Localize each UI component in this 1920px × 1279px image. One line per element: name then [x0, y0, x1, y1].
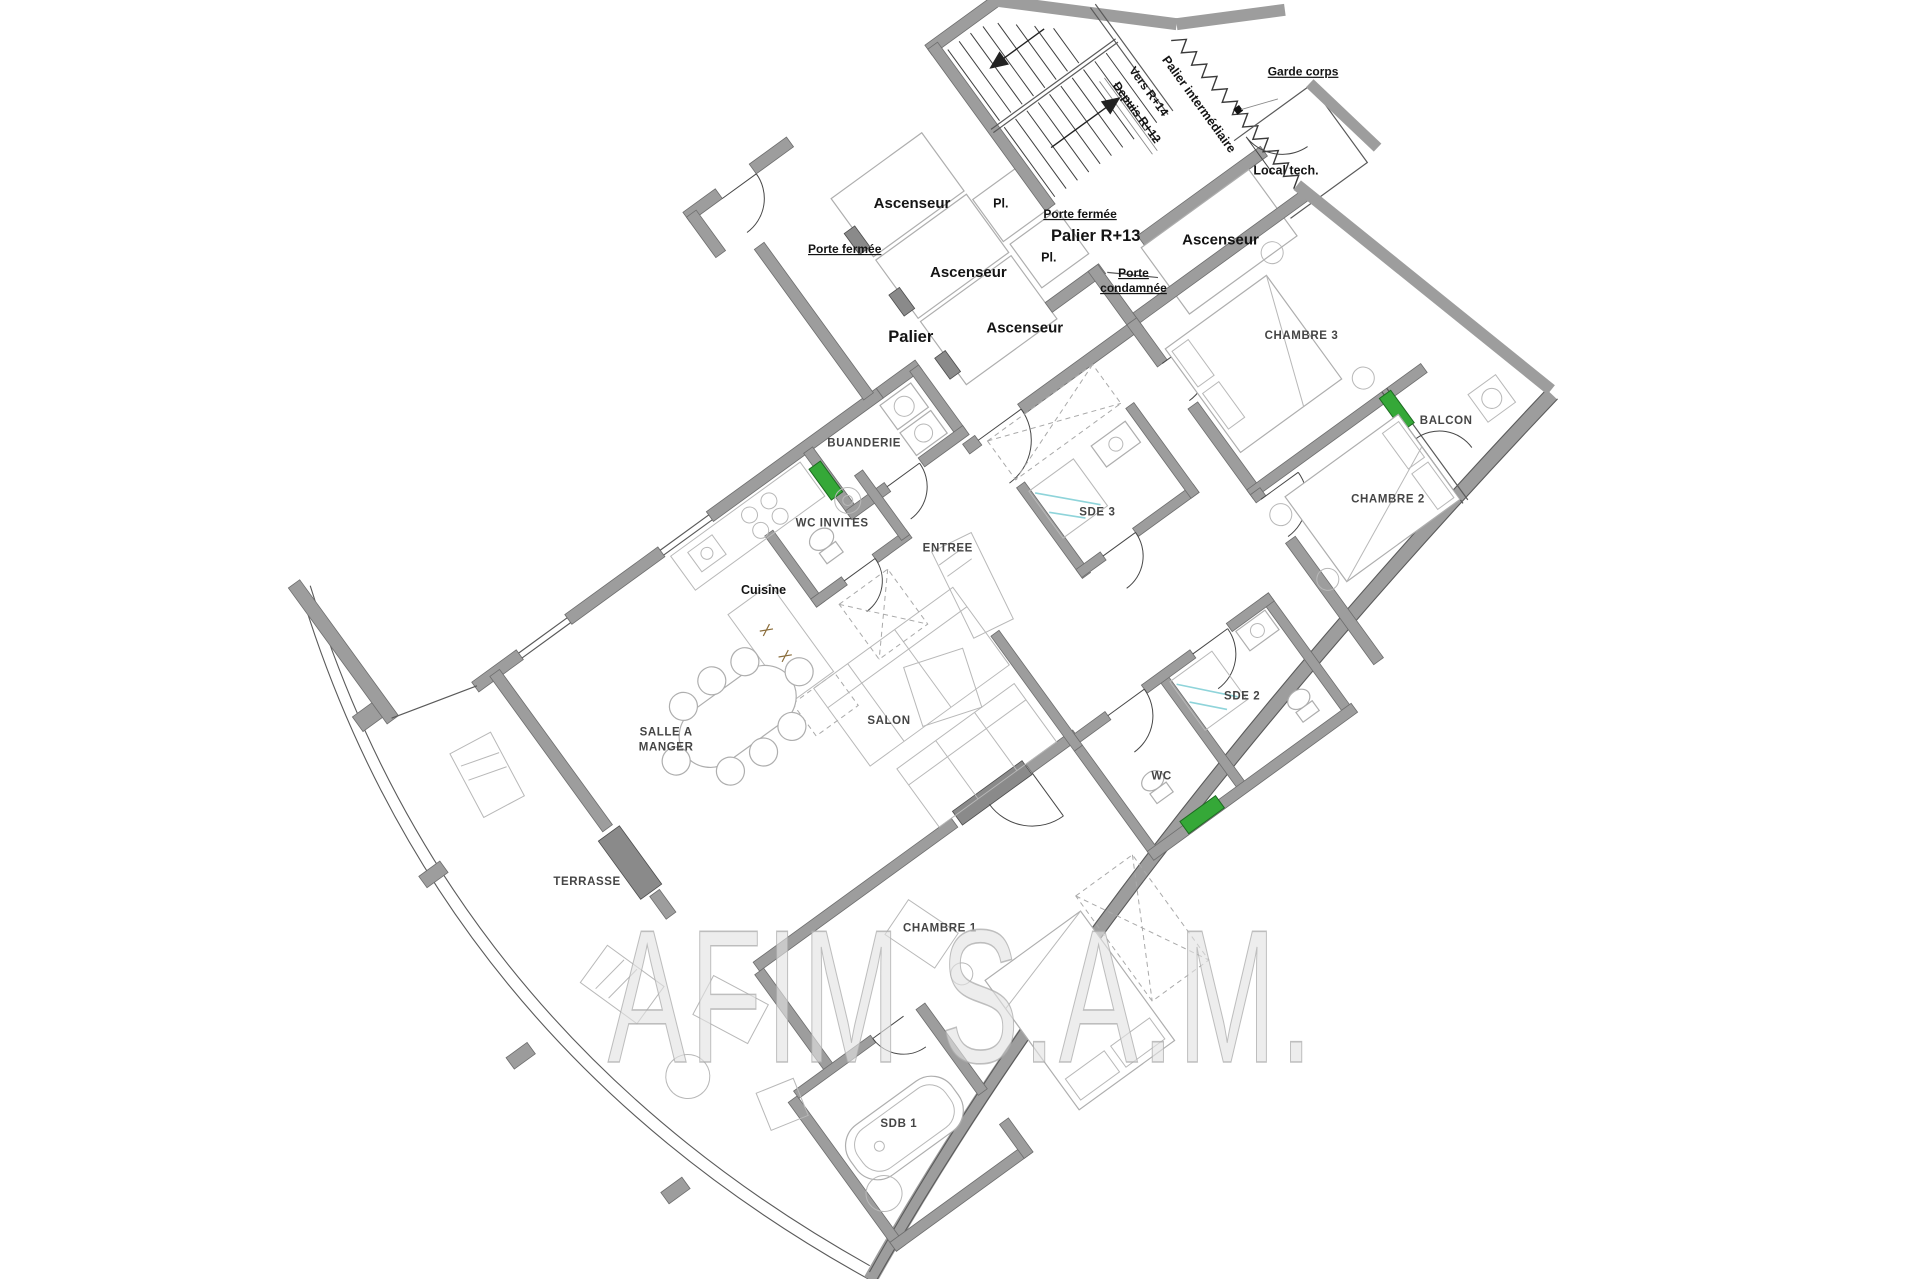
watermark-text: AFIM S.A.M. — [608, 891, 1316, 1103]
room-label-salle-line2: MANGER — [639, 742, 694, 754]
label-ascenseur-4: Ascenseur — [1182, 231, 1259, 248]
label-ascenseur-2: Ascenseur — [930, 264, 1007, 281]
stair-arrow-up — [987, 23, 1049, 73]
label-palier-intermediaire: Palier intermédiaire — [1159, 53, 1239, 155]
label-porte-fermee-top: Porte fermée — [1043, 207, 1117, 221]
label-pl-2: Pl. — [1041, 251, 1056, 265]
island-fittings — [760, 624, 792, 662]
dining-table-icon — [631, 617, 845, 817]
floor-plan-page: Ascenseur Ascenseur Ascenseur Ascenseur … — [0, 0, 1920, 1279]
balcon-table-icon — [1468, 375, 1515, 422]
wc-door-arc — [1108, 689, 1171, 752]
entree-closet — [839, 569, 928, 659]
room-label-salon: SALON — [867, 715, 910, 727]
room-label-sde2: SDE 2 — [1224, 691, 1260, 703]
label-porte-condamnee-line2: condamnée — [1100, 281, 1167, 295]
wc-invites-walls — [765, 467, 932, 634]
label-palier: Palier — [888, 328, 934, 346]
sofa-group-icon — [790, 526, 1101, 838]
balcon-ne-facade — [1297, 135, 1551, 440]
label-porte-fermee-left: Porte fermée — [808, 242, 882, 256]
sde3-walls — [984, 358, 1219, 606]
west-pier-wall — [288, 580, 398, 724]
room-label-cuisine: Cuisine — [741, 583, 786, 597]
room-label-sdb1: SDB 1 — [880, 1118, 917, 1130]
label-porte-condamnee-line1: Porte — [1118, 266, 1149, 280]
floor-plan-svg: Ascenseur Ascenseur Ascenseur Ascenseur … — [0, 0, 1920, 1279]
apartment-entry-door-arc — [978, 409, 1052, 483]
room-label-chambre2: CHAMBRE 2 — [1351, 493, 1425, 505]
coffee-table-icon — [904, 648, 982, 726]
room-label-sde3: SDE 3 — [1079, 507, 1115, 519]
terrace-sliding-door — [598, 826, 661, 900]
label-garde-corps: Garde corps — [1268, 65, 1339, 79]
salon-sliding-door — [952, 761, 1032, 825]
room-label-wc-invites: WC INVITES — [796, 518, 869, 530]
label-palier-r13: Palier R+13 — [1051, 227, 1140, 245]
label-ascenseur-1: Ascenseur — [874, 195, 951, 212]
wc-invites-door-arc — [844, 558, 897, 611]
label-pl-1: Pl. — [993, 197, 1008, 211]
room-label-chambre3: CHAMBRE 3 — [1265, 330, 1339, 342]
room-label-salle-line1: SALLE A — [640, 727, 693, 739]
room-label-buanderie: BUANDERIE — [827, 438, 901, 450]
label-local-tech: Local tech. — [1253, 164, 1318, 178]
sde3-basin-icon — [1091, 421, 1140, 467]
buanderie-door-arc — [887, 463, 943, 519]
sink-icon — [688, 535, 726, 572]
palier-top-door-arc — [722, 174, 781, 233]
label-ascenseur-3: Ascenseur — [986, 319, 1063, 336]
terrace-lounger-icon — [450, 732, 524, 817]
room-label-wc: WC — [1151, 770, 1171, 782]
room-label-terrasse: TERRASSE — [553, 876, 620, 888]
room-label-balcon: BALCON — [1420, 415, 1473, 427]
sde3-door-arc — [1103, 532, 1159, 588]
room-label-entree: ENTREE — [923, 542, 973, 554]
